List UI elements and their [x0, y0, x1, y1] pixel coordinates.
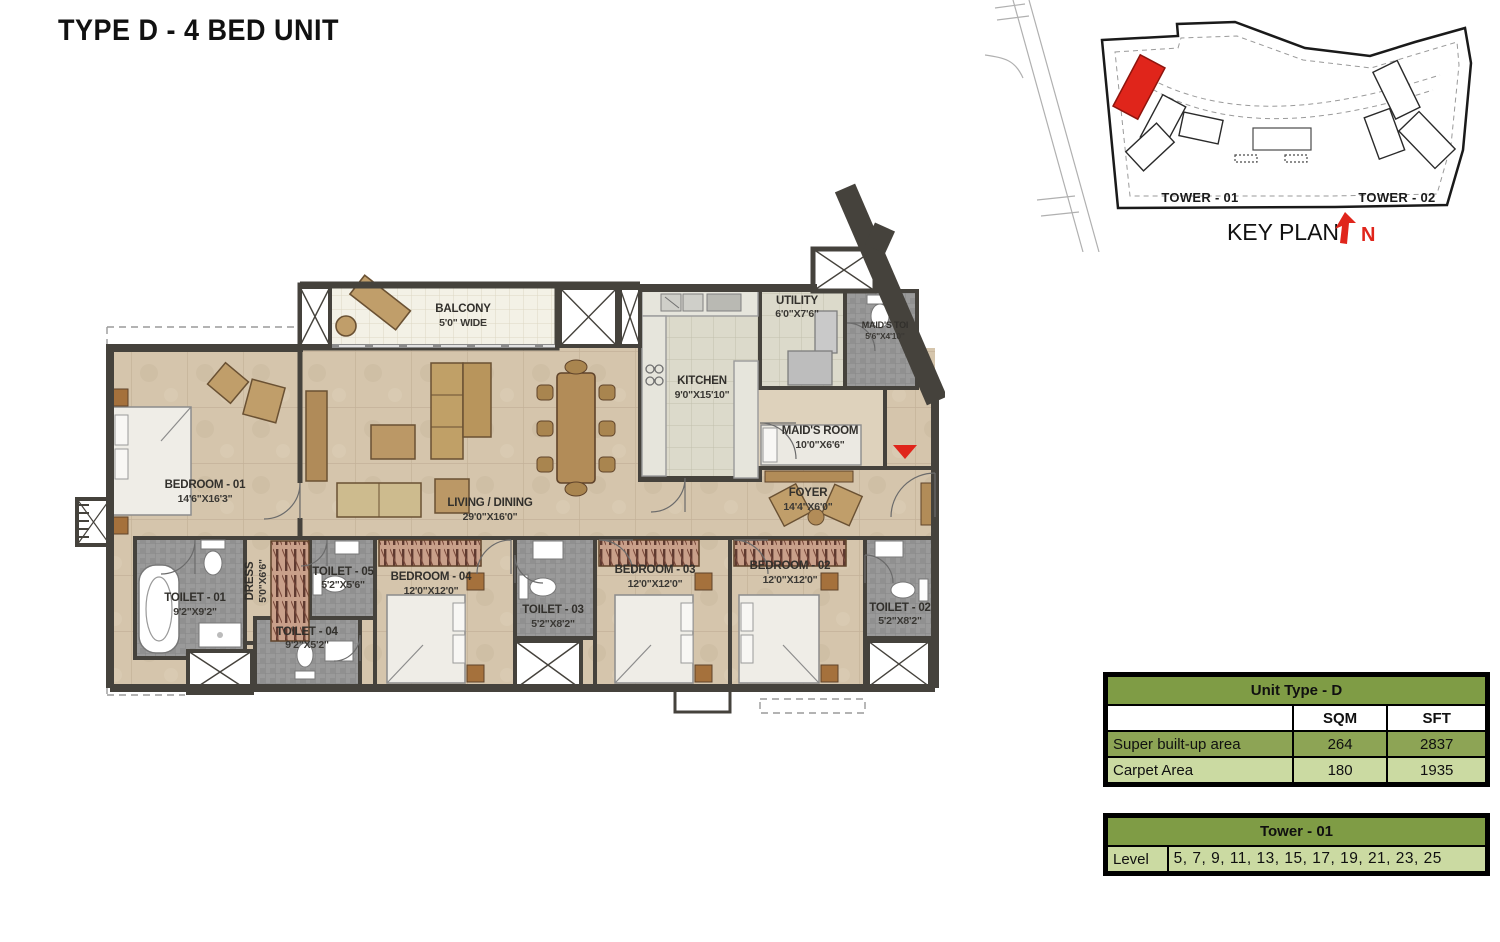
unit-table-blank-cell	[1107, 705, 1293, 731]
room-label: TOILET - 05	[312, 566, 374, 578]
row-sft: 1935	[1387, 757, 1486, 783]
unit-table-col-sft: SFT	[1387, 705, 1486, 731]
tower-table-title: Tower - 01	[1107, 817, 1486, 846]
row-sft: 2837	[1387, 731, 1486, 757]
room-label: MAID'S TOI	[862, 320, 908, 330]
washbasin-icon	[199, 623, 241, 647]
room-dim: 29'0"X16'0"	[463, 511, 518, 523]
key-plan: TOWER - 01 TOWER - 02 KEY PLAN N	[985, 0, 1490, 252]
row-label: Super built-up area	[1107, 731, 1293, 757]
room-dim: 5'2"X5'6"	[321, 579, 365, 591]
room-dim: 12'0"X12'0"	[763, 574, 818, 586]
room-label: DRESS	[244, 561, 256, 600]
room-dim: 5'6"X4'10"	[865, 331, 905, 341]
room-label: BALCONY	[435, 303, 491, 315]
room-label: TOILET - 04	[276, 626, 338, 638]
room-dim: 5'2"X8'2"	[878, 615, 922, 627]
room-label: LIVING / DINING	[447, 497, 532, 509]
tower1-label: TOWER - 01	[1161, 190, 1238, 205]
key-plan-title: KEY PLAN	[1227, 219, 1339, 245]
room-dim: 6'0"X7'6"	[775, 308, 819, 320]
room-label: TOILET - 03	[522, 604, 584, 616]
room-dim: 10'0"X6'6"	[795, 439, 844, 451]
room-label: KITCHEN	[677, 375, 727, 387]
room-dim: 14'4"X6'0"	[783, 501, 832, 513]
room-label: TOILET - 01	[164, 592, 226, 604]
room-dim: 9'2"X5'2"	[285, 639, 329, 651]
row-label: Carpet Area	[1107, 757, 1293, 783]
room-dim: 5'0"X6'6"	[257, 559, 269, 603]
room-label: BEDROOM - 04	[391, 571, 472, 583]
row-sqm: 180	[1293, 757, 1388, 783]
room-label: TOILET - 02	[869, 602, 931, 614]
level-label: Level	[1107, 846, 1168, 872]
room-label: BEDROOM - 03	[615, 564, 696, 576]
room-dim: 5'0" WIDE	[439, 317, 487, 329]
room-dim: 12'0"X12'0"	[628, 578, 683, 590]
room-label: MAID'S ROOM	[782, 425, 859, 437]
unit-table-title: Unit Type - D	[1107, 676, 1486, 705]
floor-plan: BALCONY 5'0" WIDE BEDROOM - 01 14'6"X16'…	[75, 183, 945, 731]
tower2-label: TOWER - 02	[1358, 190, 1435, 205]
north-label: N	[1361, 224, 1375, 246]
room-dim: 9'0"X15'10"	[675, 389, 730, 401]
room-label: BEDROOM - 01	[165, 479, 246, 491]
room-dim: 5'2"X8'2"	[531, 618, 575, 630]
room-label: UTILITY	[776, 295, 819, 307]
key-plan-roads	[985, 0, 1099, 252]
page-title: TYPE D - 4 BED UNIT	[58, 14, 339, 47]
unit-table-col-sqm: SQM	[1293, 705, 1388, 731]
level-values: 5, 7, 9, 11, 13, 15, 17, 19, 21, 23, 25	[1168, 846, 1486, 872]
unit-area-table: Unit Type - D SQM SFT Super built-up are…	[1103, 672, 1490, 787]
room-dim: 14'6"X16'3"	[178, 493, 233, 505]
wardrobe-icon	[379, 540, 481, 566]
row-sqm: 264	[1293, 731, 1388, 757]
room-dim: 12'0"X12'0"	[404, 585, 459, 597]
tower-level-table: Tower - 01 Level 5, 7, 9, 11, 13, 15, 17…	[1103, 813, 1490, 876]
table-row: Carpet Area 180 1935	[1107, 757, 1486, 783]
table-row: Super built-up area 264 2837	[1107, 731, 1486, 757]
bed-icon	[111, 389, 191, 534]
room-label: BEDROOM - 02	[750, 560, 831, 572]
table-row: Level 5, 7, 9, 11, 13, 15, 17, 19, 21, 2…	[1107, 846, 1486, 872]
room-dim: 9'2"X9'2"	[173, 606, 217, 618]
room-label: FOYER	[789, 487, 829, 499]
